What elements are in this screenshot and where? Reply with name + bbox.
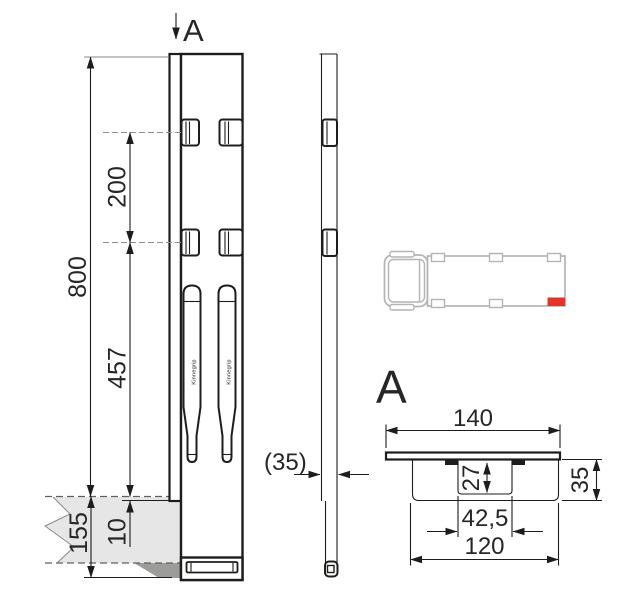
dim-thickness-label: (35) <box>264 449 307 476</box>
brand-embossing: Kinnegrip <box>226 359 232 384</box>
pocket-hole <box>220 230 243 256</box>
section-channel-tab <box>445 460 459 466</box>
front-foot <box>181 558 243 581</box>
section-top-plate <box>386 453 560 460</box>
brand-embossing: Kinnegrip <box>191 359 197 384</box>
foot-slot <box>187 562 238 573</box>
dim-below-platform-label: 155 <box>65 512 93 554</box>
pocket-hole <box>182 120 200 146</box>
section-detail-title: A <box>376 361 407 413</box>
truck-mirror-bottom <box>390 305 414 311</box>
dim-hole-to-platform-label: 457 <box>103 347 131 389</box>
pocket-hole <box>220 120 243 146</box>
front-view: Kinnegrip Kinnegrip A <box>170 13 243 580</box>
platform-shadow <box>134 563 182 578</box>
side-view-dimension: (35) <box>264 449 369 476</box>
stake-pocket <box>432 254 445 262</box>
truck-location-icon <box>385 252 566 311</box>
mounting-location-marker <box>548 298 566 307</box>
stake-pocket <box>432 300 445 308</box>
truck-mirror-top <box>390 252 414 258</box>
truck-bed <box>428 256 566 306</box>
side-foot-hole <box>328 566 335 573</box>
side-view: (35) <box>264 54 369 577</box>
technical-drawing-page: Kinnegrip Kinnegrip A 800 200 <box>0 0 637 604</box>
stake-pocket <box>548 254 561 262</box>
pocket-hole <box>182 230 200 256</box>
section-marker-label: A <box>183 13 204 48</box>
section-cut-marker: A <box>176 13 204 48</box>
stanchion-drawing: Kinnegrip Kinnegrip A 800 200 <box>0 0 637 604</box>
dim-platform-overlap-label: 10 <box>103 518 131 546</box>
dim-height-label: 35 <box>567 467 594 494</box>
section-channel-tab <box>512 460 526 466</box>
section-detail: A 140 27 35 42,5 120 <box>376 361 602 566</box>
dim-hole-spacing-label: 200 <box>103 166 131 208</box>
dim-recess-depth-label: 27 <box>458 465 485 492</box>
front-side-flange <box>170 54 182 501</box>
dim-overall-width-label: 140 <box>453 405 493 432</box>
dim-total-height-label: 800 <box>64 256 92 298</box>
stake-pocket <box>490 300 503 308</box>
side-pocket-boss <box>323 230 338 257</box>
stake-pocket <box>490 254 503 262</box>
side-pocket-boss <box>323 120 338 147</box>
dim-recess-width-label: 42,5 <box>462 505 509 532</box>
dim-body-width-label: 120 <box>464 533 504 560</box>
